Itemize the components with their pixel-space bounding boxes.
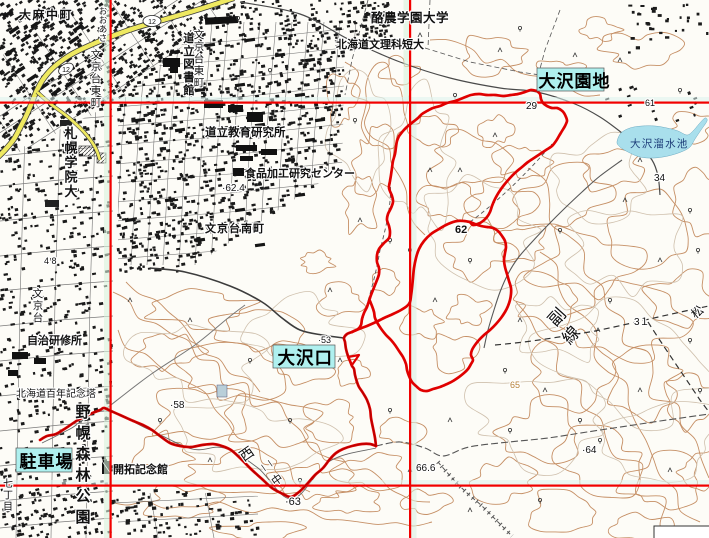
svg-text:·64: ·64 — [582, 445, 597, 456]
svg-text:園: 園 — [75, 509, 90, 526]
svg-text:さ: さ — [99, 33, 108, 43]
svg-text:目: 目 — [3, 502, 13, 513]
svg-text:4 8: 4 8 — [44, 256, 57, 266]
svg-text:林: 林 — [75, 466, 91, 484]
svg-text:·63: ·63 — [285, 496, 301, 508]
svg-text:台: 台 — [91, 72, 102, 85]
svg-text:札: 札 — [63, 126, 77, 141]
svg-text:食品加工研究センター: 食品加工研究センター — [245, 166, 355, 180]
svg-text:大沢園地: 大沢園地 — [539, 71, 611, 91]
svg-text:34: 34 — [654, 173, 666, 184]
svg-text:京: 京 — [194, 40, 205, 53]
svg-text:京: 京 — [33, 299, 44, 312]
svg-text:大沢口: 大沢口 — [278, 348, 334, 368]
svg-text:七: 七 — [3, 478, 13, 490]
svg-text:大麻中町: 大麻中町 — [19, 7, 73, 22]
svg-text:幌: 幌 — [64, 141, 77, 156]
svg-text:台: 台 — [194, 52, 205, 65]
svg-text:大沢溜水池: 大沢溜水池 — [630, 137, 689, 150]
svg-text:自治研修所: 自治研修所 — [27, 333, 82, 347]
svg-text:大: 大 — [64, 184, 77, 199]
svg-text:野: 野 — [75, 404, 90, 421]
svg-text:町: 町 — [91, 97, 102, 109]
svg-text:·58: ·58 — [170, 400, 185, 411]
svg-text:酪農学園大学: 酪農学園大学 — [371, 10, 449, 25]
svg-text:文京台南町: 文京台南町 — [205, 221, 265, 235]
svg-text:東: 東 — [91, 84, 102, 97]
svg-text:文: 文 — [33, 287, 44, 300]
svg-text:町: 町 — [194, 77, 205, 89]
svg-text:北海道文理科短大: 北海道文理科短大 — [336, 37, 424, 51]
svg-text:文: 文 — [194, 28, 205, 41]
svg-text:65: 65 — [510, 380, 520, 390]
svg-text:文: 文 — [91, 48, 102, 61]
svg-text:公: 公 — [75, 488, 90, 505]
svg-text:29: 29 — [526, 101, 538, 112]
svg-text:駐車場: 駐車場 — [20, 452, 74, 472]
svg-text:62: 62 — [455, 224, 467, 236]
svg-text:·53: ·53 — [318, 335, 331, 345]
svg-text:·62.4: ·62.4 — [222, 183, 245, 194]
svg-text:東: 東 — [194, 64, 205, 77]
svg-text:森: 森 — [75, 445, 91, 463]
svg-text:幌: 幌 — [75, 424, 90, 442]
svg-text:開拓記念館: 開拓記念館 — [113, 462, 168, 476]
svg-text:京: 京 — [91, 60, 102, 73]
svg-text:3１: 3１ — [634, 317, 650, 328]
svg-text:学: 学 — [64, 155, 77, 170]
svg-text:台: 台 — [33, 311, 44, 324]
svg-text:北海道百年記念塔: 北海道百年記念塔 — [16, 387, 96, 400]
svg-text:66.6: 66.6 — [416, 463, 436, 474]
svg-text:61: 61 — [645, 98, 655, 108]
svg-text:道立教育研究所: 道立教育研究所 — [205, 125, 286, 139]
svg-text:丁: 丁 — [3, 491, 13, 502]
svg-text:院: 院 — [64, 170, 77, 185]
svg-text:12: 12 — [148, 19, 156, 26]
svg-text:12: 12 — [62, 67, 70, 74]
